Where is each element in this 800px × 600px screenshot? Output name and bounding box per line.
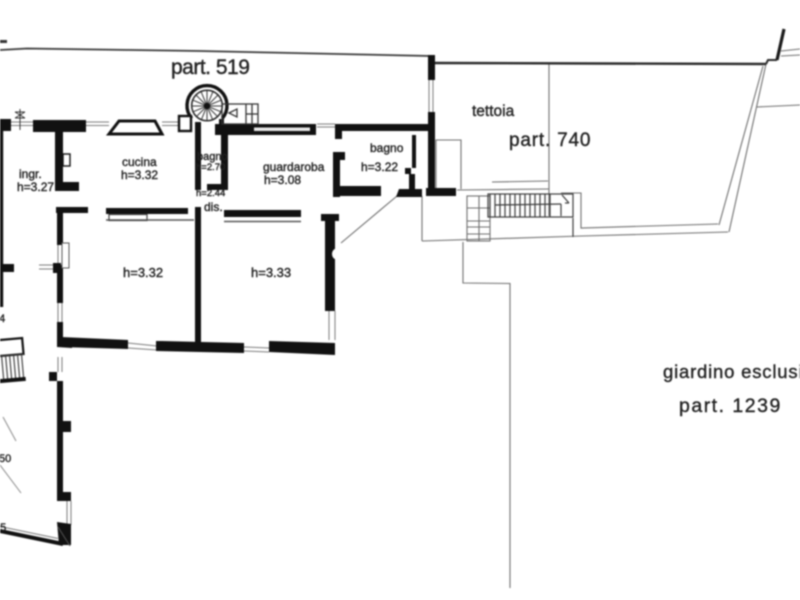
svg-text:50: 50: [0, 453, 11, 465]
svg-text:24: 24: [0, 313, 5, 325]
svg-text:cucina: cucina: [122, 155, 157, 169]
svg-text:h=2.70: h=2.70: [196, 162, 225, 173]
svg-text:h=3.22: h=3.22: [361, 160, 398, 174]
svg-text:part. 1239: part. 1239: [679, 395, 782, 417]
svg-text:h=2.44: h=2.44: [196, 188, 225, 199]
svg-text:bagno: bagno: [370, 141, 404, 155]
svg-text:giardino esclusivo: giardino esclusivo: [663, 361, 800, 382]
svg-text:h=3.08: h=3.08: [264, 173, 301, 187]
svg-text:h=3.33: h=3.33: [251, 265, 291, 280]
svg-text:part. 740: part. 740: [509, 130, 591, 151]
svg-text:tettoia: tettoia: [472, 103, 515, 120]
svg-text:guardaroba: guardaroba: [263, 160, 325, 174]
svg-text:dis.: dis.: [204, 200, 223, 214]
svg-text:h=3.32: h=3.32: [121, 168, 158, 182]
svg-text:ingr.: ingr.: [19, 167, 42, 181]
svg-text:h=3.27: h=3.27: [17, 180, 54, 194]
svg-text:25: 25: [0, 522, 6, 534]
svg-text:part. 519: part. 519: [171, 56, 249, 79]
svg-text:h=3.32: h=3.32: [123, 265, 163, 280]
